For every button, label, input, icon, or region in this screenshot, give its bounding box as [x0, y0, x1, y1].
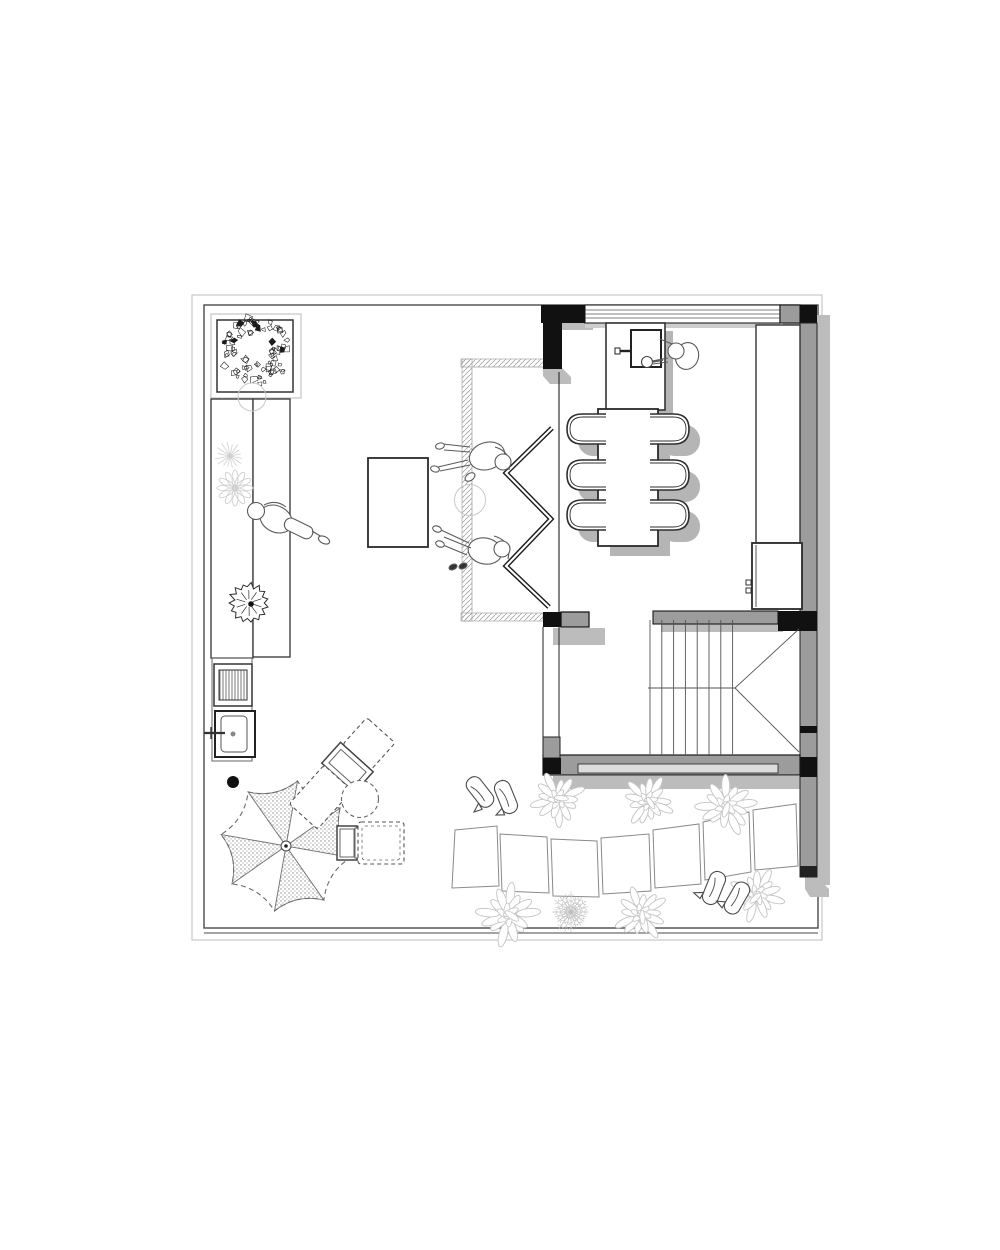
slippers-pair-1	[456, 774, 520, 819]
structural-column-gray	[780, 305, 800, 323]
tree-icon	[220, 314, 289, 386]
dining-chair	[567, 460, 606, 490]
staircase	[648, 620, 799, 755]
lounge-chair-1	[287, 716, 397, 832]
floor-plan-canvas	[0, 0, 1000, 1250]
dining-chair	[567, 414, 606, 444]
dining-chair	[650, 414, 689, 444]
fern-plant-icon	[552, 891, 588, 932]
dining-table	[598, 409, 658, 546]
structural-column-corner	[800, 305, 817, 323]
tree-planter	[211, 314, 301, 398]
dining-chair	[650, 460, 689, 490]
tall-counter	[756, 325, 800, 543]
accordion-glass-door	[506, 428, 552, 607]
kitchen-island	[606, 323, 665, 410]
side-table	[342, 781, 379, 818]
dining-chair	[567, 500, 606, 530]
lounge-chair-2	[337, 822, 404, 864]
coffee-table	[368, 458, 428, 547]
door-recess-hatch	[461, 359, 545, 621]
head	[668, 343, 684, 359]
dining-chair	[650, 500, 689, 530]
low-cabinet	[746, 543, 802, 609]
structural-column-top-left	[541, 305, 585, 369]
floor-drain	[227, 776, 239, 788]
window	[585, 305, 780, 323]
pan	[642, 357, 653, 368]
